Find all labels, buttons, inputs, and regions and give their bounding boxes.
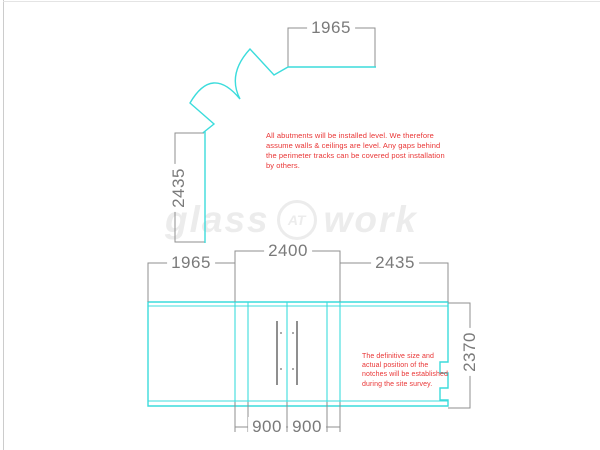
- elevation-view: [148, 251, 470, 432]
- cad-drawing-canvas: glass AT work: [0, 0, 600, 450]
- door-leaf-width-label-1: 900: [248, 417, 286, 437]
- plan-width-dimension-label: 1965: [307, 18, 355, 38]
- right-door-handle: [296, 321, 298, 385]
- handle-fixing-dot: [280, 368, 282, 370]
- levelling-note: All abutments will be installed level. W…: [266, 131, 461, 171]
- handle-fixing-dot: [292, 368, 294, 370]
- left-door-handle: [276, 321, 278, 385]
- notch-note: The definitive size and actual position …: [362, 352, 457, 389]
- elevation-panel-joints: [235, 302, 340, 406]
- elevation-door-width-label: 2400: [264, 241, 312, 261]
- handle-fixing-dot: [292, 332, 294, 334]
- elevation-height-dimension-label: 2370: [460, 328, 480, 376]
- elevation-right-width-label: 2435: [371, 253, 419, 273]
- handle-fixing-dot: [280, 332, 282, 334]
- dimension-lines: [148, 251, 470, 432]
- drawing-linework: [0, 0, 600, 450]
- elevation-left-width-label: 1965: [167, 253, 215, 273]
- plan-height-dimension-label: 2435: [169, 164, 189, 212]
- door-leaf-width-label-2: 900: [288, 417, 326, 437]
